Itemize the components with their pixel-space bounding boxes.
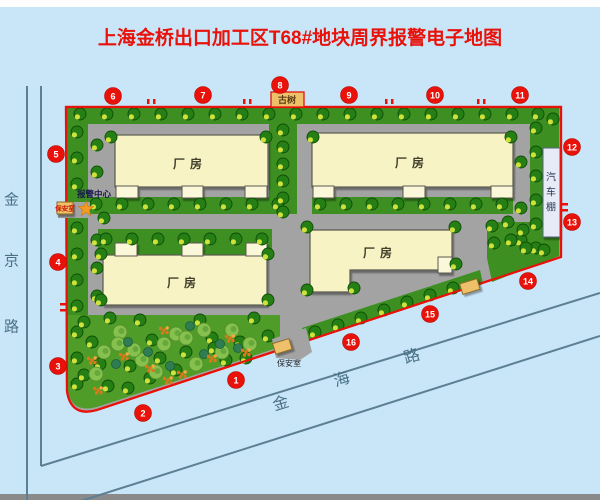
bush-icon <box>189 357 203 371</box>
zone-marker-7[interactable]: 7 <box>195 87 212 104</box>
zone-number: 3 <box>55 362 60 372</box>
tree-icon <box>366 198 378 210</box>
ancient-tree-label: 古树 <box>278 94 296 105</box>
bush-icon <box>197 323 211 337</box>
tree-icon <box>71 248 83 260</box>
tree-icon <box>301 284 313 296</box>
zone-marker-16[interactable]: 16 <box>343 334 360 351</box>
tree-icon <box>98 212 110 224</box>
tree-icon <box>470 198 482 210</box>
tree-icon <box>344 108 356 120</box>
zone-marker-2[interactable]: 2 <box>135 405 152 422</box>
tree-icon <box>479 108 491 120</box>
tree-icon <box>340 198 352 210</box>
bush-icon <box>111 337 125 351</box>
guard-room-south-label: 保安室 <box>277 358 301 368</box>
road-label-char: 京 <box>4 253 19 270</box>
tree-icon <box>532 108 544 120</box>
tree-icon <box>530 194 542 206</box>
tree-icon <box>277 141 289 153</box>
building-entrance <box>245 186 267 198</box>
zone-marker-9[interactable]: 9 <box>341 87 358 104</box>
tree-icon <box>220 198 232 210</box>
zone-marker-6[interactable]: 6 <box>105 88 122 105</box>
bush-icon <box>97 345 111 359</box>
tree-icon <box>71 274 83 286</box>
tree-icon <box>78 369 90 381</box>
zone-marker-13[interactable]: 13 <box>564 214 581 231</box>
alarm-map-canvas: 上海金桥出口加工区T68#地块周界报警电子地图 金京路 金海路 厂房 <box>0 0 600 500</box>
tree-icon <box>515 202 527 214</box>
tree-icon <box>71 152 83 164</box>
tree-icon <box>371 108 383 120</box>
tree-icon <box>450 258 462 270</box>
tree-icon <box>425 108 437 120</box>
tree-icon <box>538 244 550 256</box>
zone-number: 10 <box>430 91 440 101</box>
building-entrance <box>116 186 138 198</box>
zone-marker-4[interactable]: 4 <box>50 254 67 271</box>
zone-number: 8 <box>277 81 282 91</box>
tree-icon <box>517 224 529 236</box>
zone-number: 2 <box>140 409 145 419</box>
tree-icon <box>317 108 329 120</box>
tree-icon <box>91 139 103 151</box>
tree-icon <box>142 198 154 210</box>
zone-number: 5 <box>53 150 58 160</box>
zone-marker-10[interactable]: 10 <box>427 87 444 104</box>
tree-icon <box>168 198 180 210</box>
tree-icon <box>128 108 140 120</box>
tree-icon <box>418 198 430 210</box>
zone-marker-8[interactable]: 8 <box>272 77 289 94</box>
tree-icon <box>71 300 83 312</box>
zone-number: 7 <box>200 91 205 101</box>
tree-icon <box>134 314 146 326</box>
tree-icon <box>502 216 514 228</box>
tree-icon <box>277 175 289 187</box>
tree-icon <box>71 126 83 138</box>
bush-icon <box>89 367 103 381</box>
tree-icon <box>277 158 289 170</box>
building-label: 厂房 <box>167 275 201 290</box>
tree-icon <box>256 233 268 245</box>
tree-icon <box>91 166 103 178</box>
tree-icon <box>277 192 289 204</box>
tree-icon <box>104 312 116 324</box>
tree-icon <box>155 108 167 120</box>
building-entrance <box>182 186 203 198</box>
tree-icon <box>204 233 216 245</box>
shrub-icon <box>112 360 121 369</box>
building-entrance <box>313 186 334 198</box>
tree-icon <box>95 294 107 306</box>
tree-icon <box>277 124 289 136</box>
shrub-icon <box>124 338 133 347</box>
car-shed-label-char: 车 <box>546 186 556 199</box>
zone-number: 13 <box>567 218 577 228</box>
tree-icon <box>505 234 517 246</box>
shrub-icon <box>144 348 153 357</box>
tree-icon <box>260 131 272 143</box>
zone-number: 16 <box>346 338 356 348</box>
tree-icon <box>178 233 190 245</box>
zone-marker-3[interactable]: 3 <box>50 358 67 375</box>
tree-icon <box>126 233 138 245</box>
tree-icon <box>290 108 302 120</box>
tree-icon <box>496 198 508 210</box>
tree-icon <box>105 131 117 143</box>
tree-icon <box>506 108 518 120</box>
tree-icon <box>515 156 527 168</box>
tree-icon <box>236 108 248 120</box>
tree-icon <box>262 294 274 306</box>
guard-room-west-label: 保安室 <box>54 204 75 213</box>
top-edge <box>0 0 600 7</box>
shrub-icon <box>216 340 225 349</box>
tree-icon <box>230 233 242 245</box>
car-shed: 汽车棚 <box>543 148 560 237</box>
tree-icon <box>262 248 274 260</box>
tree-icon <box>452 108 464 120</box>
building-label: 厂房 <box>173 156 207 171</box>
zone-marker-11[interactable]: 11 <box>512 87 529 104</box>
factory-building-northwest: 厂房 <box>115 135 268 198</box>
tree-icon <box>444 198 456 210</box>
tree-icon <box>182 108 194 120</box>
tree-icon <box>530 218 542 230</box>
zone-number: 11 <box>515 91 525 101</box>
tree-icon <box>180 346 192 358</box>
tree-icon <box>122 382 134 394</box>
car-shed-label-char: 汽 <box>546 171 556 184</box>
car-shed-label: 汽车棚 <box>546 171 556 214</box>
tree-icon <box>71 352 83 364</box>
car-shed-label-char: 棚 <box>546 201 556 214</box>
tree-icon <box>547 113 559 125</box>
tree-icon <box>392 198 404 210</box>
zone-number: 6 <box>110 92 115 102</box>
shrub-icon <box>186 322 195 331</box>
tree-icon <box>348 282 360 294</box>
tree-icon <box>248 312 260 324</box>
tree-icon <box>277 206 289 218</box>
tree-icon <box>301 221 313 233</box>
tree-icon <box>71 222 83 234</box>
ancient-tree-marker[interactable]: 古树 <box>271 92 304 107</box>
shrub-icon <box>166 362 175 371</box>
tree-icon <box>530 146 542 158</box>
tree-icon <box>78 316 90 328</box>
building-entrance <box>403 186 425 198</box>
tree-icon <box>91 262 103 274</box>
bush-icon <box>157 337 171 351</box>
tree-icon <box>154 352 166 364</box>
tree-icon <box>86 336 98 348</box>
tree-icon <box>209 108 221 120</box>
zone-number: 1 <box>233 376 238 386</box>
zone-marker-5[interactable]: 5 <box>48 146 65 163</box>
alarm-center-label: 报警中心 <box>77 189 112 199</box>
tree-icon <box>314 198 326 210</box>
tree-icon <box>95 248 107 260</box>
road-label-char: 金 <box>4 192 19 209</box>
tree-icon <box>124 360 136 372</box>
bush-icon <box>179 331 193 345</box>
page-title: 上海金桥出口加工区T68#地块周界报警电子地图 <box>98 26 502 49</box>
zone-number: 15 <box>425 310 435 320</box>
tree-icon <box>307 131 319 143</box>
tree-icon <box>488 237 500 249</box>
tree-icon <box>74 108 86 120</box>
tree-icon <box>530 122 542 134</box>
tree-icon <box>246 198 258 210</box>
zone-marker-1[interactable]: 1 <box>228 372 245 389</box>
tree-icon <box>194 198 206 210</box>
tree-icon <box>116 198 128 210</box>
zone-marker-15[interactable]: 15 <box>422 306 439 323</box>
tree-icon <box>505 131 517 143</box>
building-entrance <box>491 186 513 198</box>
tree-icon <box>146 334 158 346</box>
zone-number: 9 <box>346 91 351 101</box>
tree-icon <box>486 220 498 232</box>
tree-icon <box>101 108 113 120</box>
tree-icon <box>100 233 112 245</box>
zone-number: 4 <box>55 258 60 268</box>
tree-icon <box>152 233 164 245</box>
zone-marker-12[interactable]: 12 <box>564 139 581 156</box>
tree-icon <box>520 242 532 254</box>
tree-icon <box>263 108 275 120</box>
zone-marker-14[interactable]: 14 <box>520 273 537 290</box>
road-label-char: 路 <box>4 319 19 336</box>
tree-icon <box>102 380 114 392</box>
tree-icon <box>398 108 410 120</box>
tree-icon <box>530 170 542 182</box>
building-label: 厂房 <box>395 155 429 170</box>
zone-number: 14 <box>523 277 533 287</box>
zone-number: 12 <box>567 143 577 153</box>
tree-icon <box>262 330 274 342</box>
tree-icon <box>449 221 461 233</box>
building-label: 厂房 <box>363 245 397 260</box>
